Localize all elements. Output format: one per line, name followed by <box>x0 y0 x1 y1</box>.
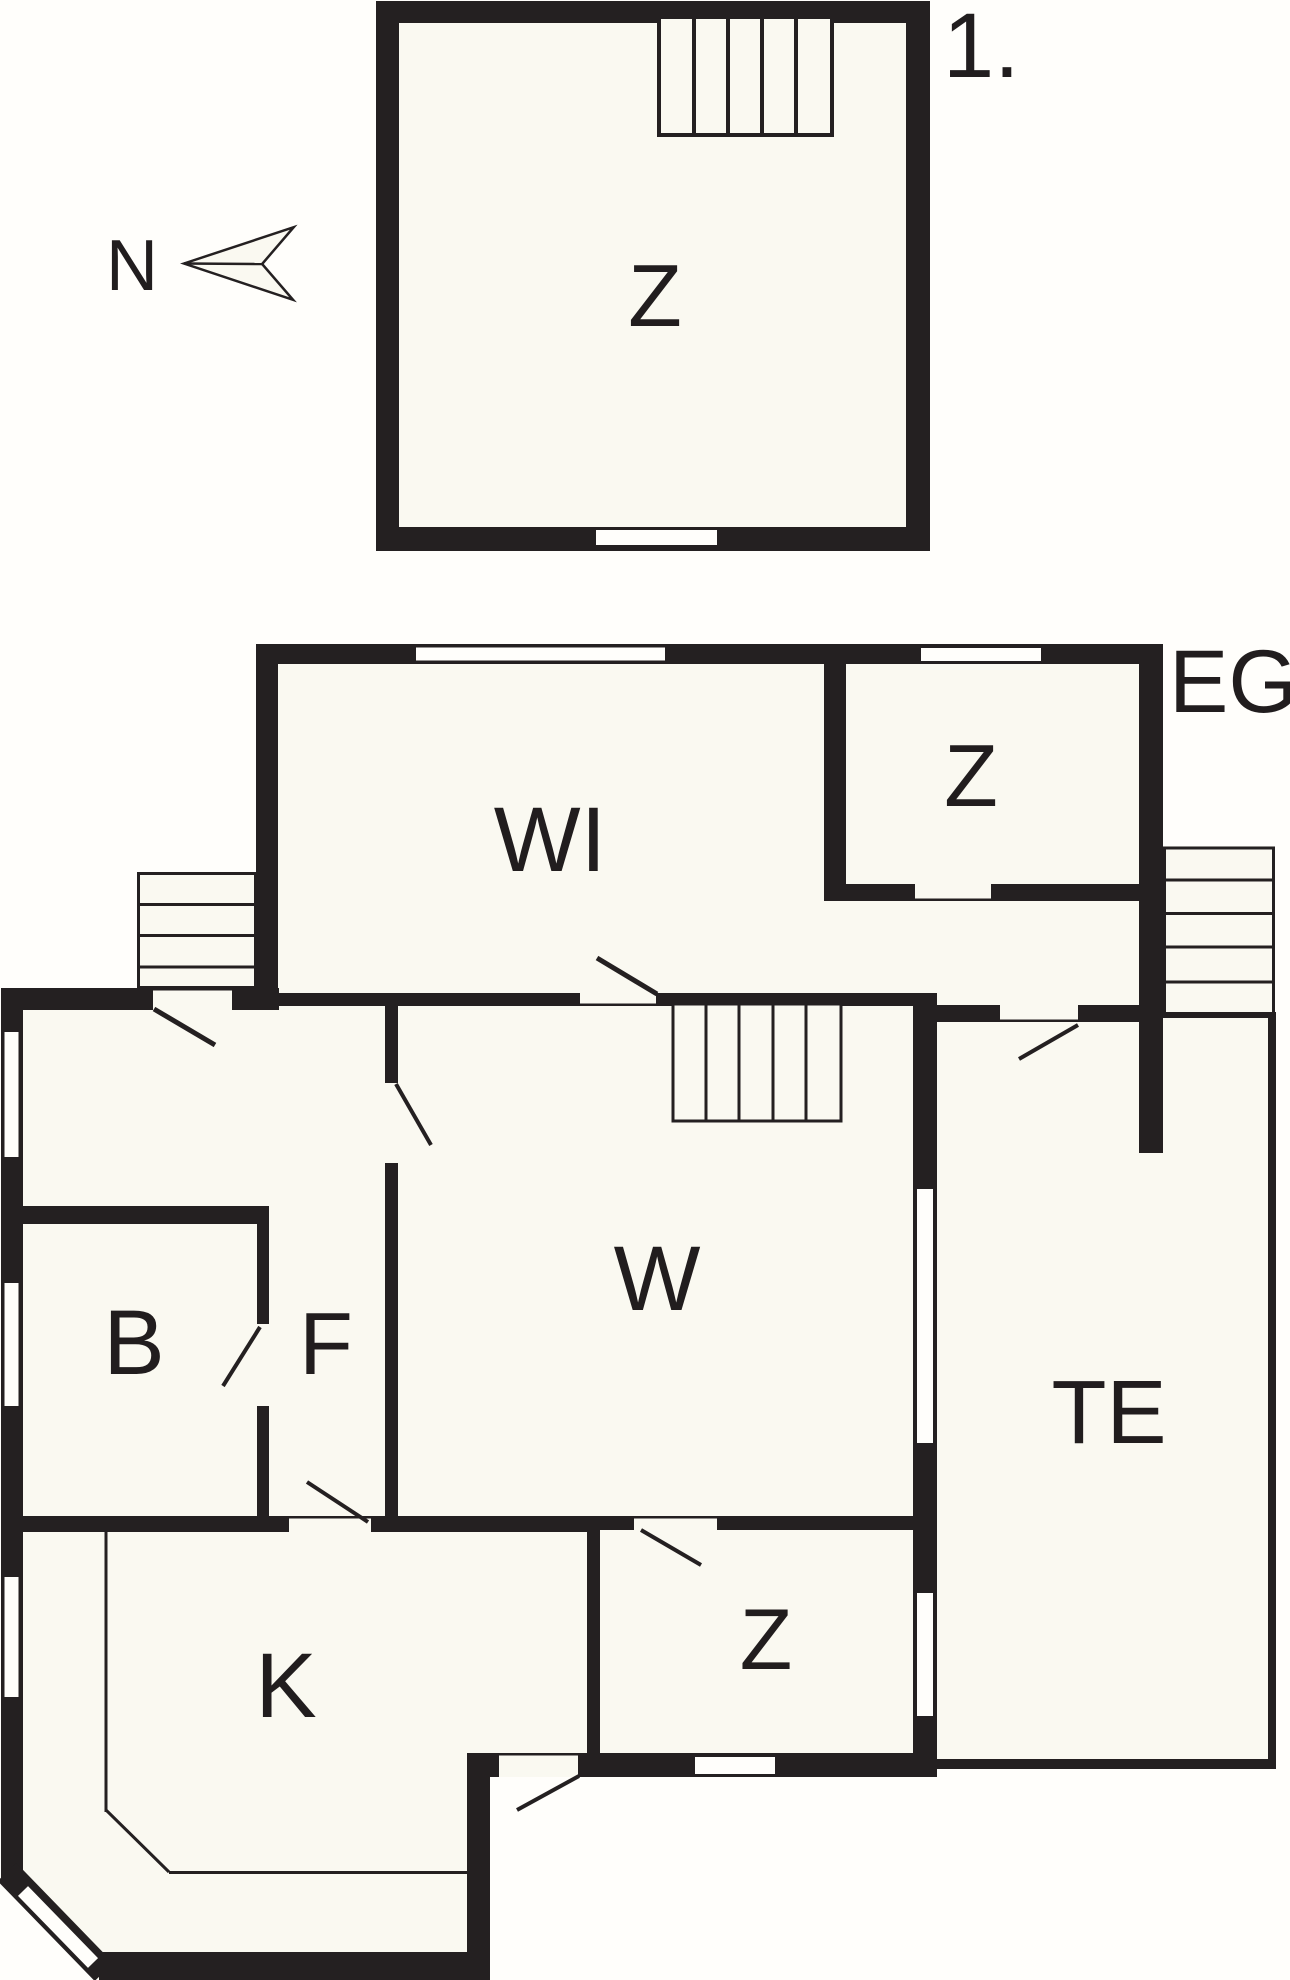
svg-text:Z: Z <box>740 1592 793 1688</box>
svg-text:W: W <box>614 1228 701 1330</box>
svg-text:N: N <box>106 226 158 306</box>
svg-text:EG: EG <box>1169 631 1290 731</box>
svg-text:WI: WI <box>494 789 606 891</box>
svg-text:Z: Z <box>944 726 998 825</box>
svg-text:Z: Z <box>628 246 682 345</box>
svg-text:F: F <box>299 1294 353 1393</box>
svg-text:TE: TE <box>1051 1363 1166 1463</box>
svg-text:K: K <box>255 1635 316 1737</box>
svg-text:B: B <box>103 1292 164 1394</box>
svg-text:1.: 1. <box>943 0 1020 97</box>
